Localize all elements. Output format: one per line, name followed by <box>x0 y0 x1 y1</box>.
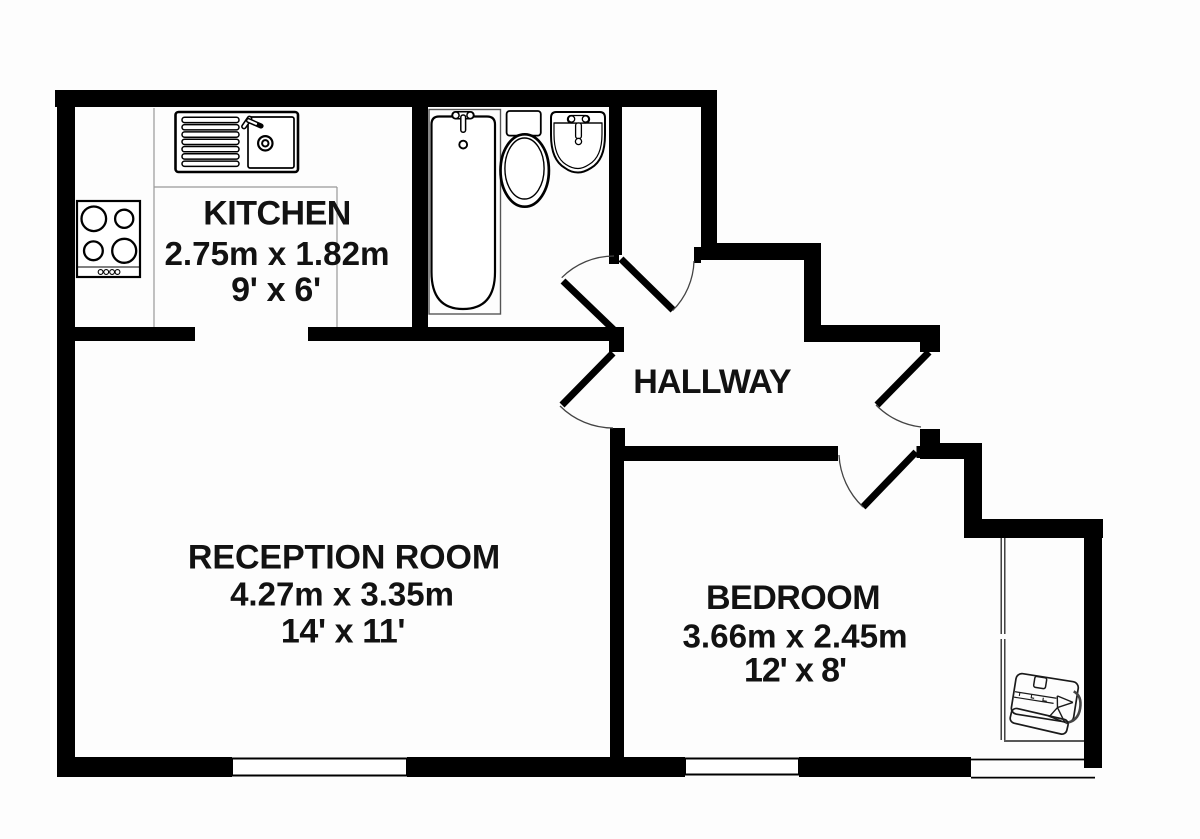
svg-text:RECEPTION ROOM: RECEPTION ROOM <box>188 539 500 577</box>
svg-text:9' x 6': 9' x 6' <box>231 271 321 309</box>
svg-text:BEDROOM: BEDROOM <box>706 579 880 617</box>
svg-text:14' x 11': 14' x 11' <box>281 613 405 651</box>
svg-text:4.27m x 3.35m: 4.27m x 3.35m <box>230 576 454 613</box>
svg-text:3.66m x 2.45m: 3.66m x 2.45m <box>682 619 907 656</box>
svg-text:KITCHEN: KITCHEN <box>203 195 351 233</box>
svg-text:HALLWAY: HALLWAY <box>633 363 792 401</box>
svg-text:12' x 8': 12' x 8' <box>744 652 846 690</box>
svg-text:2.75m x 1.82m: 2.75m x 1.82m <box>164 236 389 273</box>
